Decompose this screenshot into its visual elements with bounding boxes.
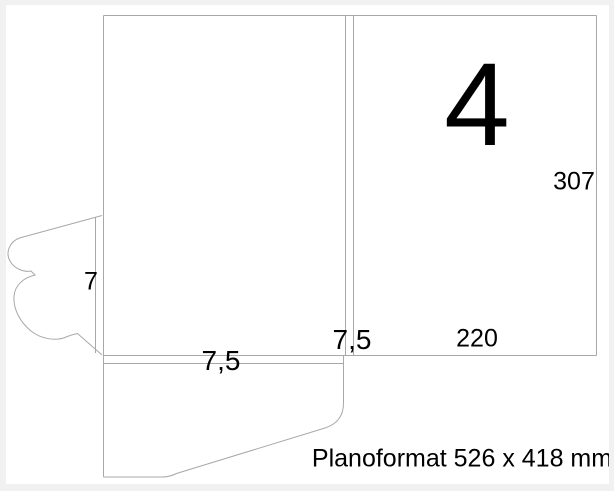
tab-dimension-label: 7 xyxy=(84,270,98,295)
folder-dieline-diagram: 4 307 220 7,5 7,5 7 Planoformat 526 x 41… xyxy=(0,0,614,491)
width-dimension-label: 220 xyxy=(456,327,498,352)
panel-number-label: 4 xyxy=(444,46,510,164)
planoformat-caption: Planoformat 526 x 418 mm xyxy=(312,447,612,472)
pocket-fold-dimension-label: 7,5 xyxy=(202,347,241,375)
spine-dimension-label: 7,5 xyxy=(333,326,372,354)
dieline-drawing xyxy=(0,0,614,491)
height-dimension-label: 307 xyxy=(553,170,595,195)
